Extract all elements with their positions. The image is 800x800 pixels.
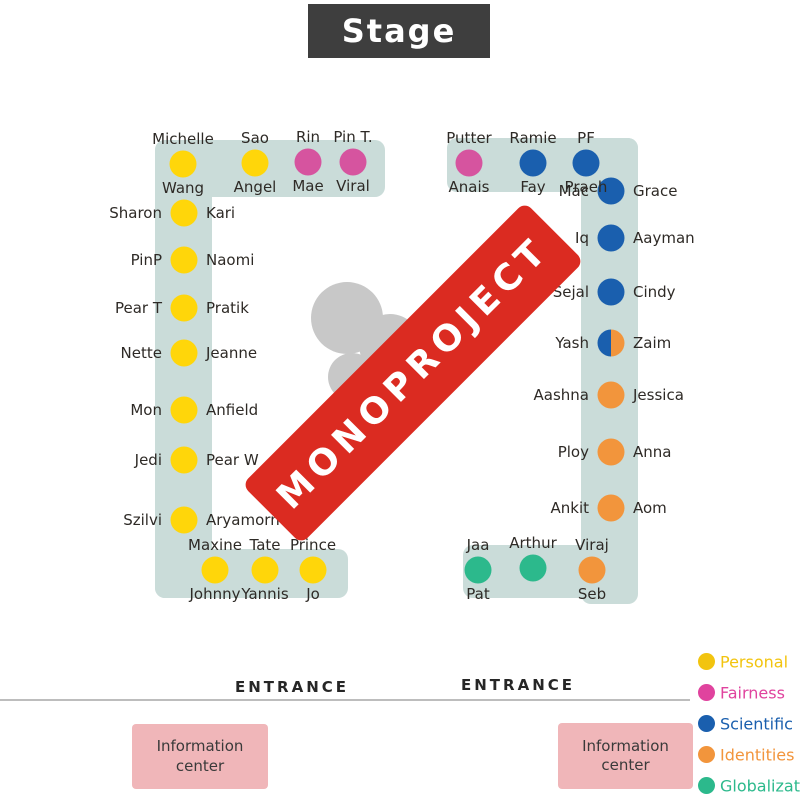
seat-name-label: Viral bbox=[336, 177, 370, 195]
legend-dot bbox=[698, 777, 715, 794]
seat-dot bbox=[242, 150, 269, 177]
seat-name-label: Cindy bbox=[633, 283, 676, 301]
seat-dot bbox=[598, 495, 625, 522]
seat-name-label: Fay bbox=[520, 178, 545, 196]
seat-name-label: Seb bbox=[578, 585, 606, 603]
seat-dot bbox=[171, 447, 198, 474]
seat-name-label: Rin bbox=[296, 128, 320, 146]
seat-name-label: Michelle bbox=[152, 130, 214, 148]
seat-name-label: Grace bbox=[633, 182, 677, 200]
legend-dot bbox=[698, 653, 715, 670]
seat-dot bbox=[579, 557, 606, 584]
seat-dot bbox=[171, 340, 198, 367]
seat-dot bbox=[598, 225, 625, 252]
seat-name-label: Jo bbox=[306, 585, 320, 603]
seat-name-label: Wang bbox=[162, 179, 204, 197]
entrance-left-label: ENTRANCE bbox=[235, 678, 349, 696]
seat-name-label: Putter bbox=[446, 129, 491, 147]
seat-name-label: Anna bbox=[633, 443, 671, 461]
seat-name-label: Arthur bbox=[509, 534, 557, 552]
seat-name-label: Aashna bbox=[534, 386, 589, 404]
seat-dot bbox=[598, 330, 625, 357]
legend-label: Globalization bbox=[720, 777, 800, 796]
seat-dot bbox=[340, 149, 367, 176]
seat-name-label: Naomi bbox=[206, 251, 254, 269]
seat-dot bbox=[202, 557, 229, 584]
seat-name-label: Aryamorn bbox=[206, 511, 280, 529]
info-center-label: Information bbox=[582, 737, 669, 757]
seat-name-label: Pear T bbox=[115, 299, 162, 317]
seat-dot bbox=[171, 200, 198, 227]
seat-name-label: Iq bbox=[575, 229, 589, 247]
divider-line bbox=[0, 699, 690, 701]
stamp-text: MONOPROJECT bbox=[269, 229, 557, 517]
seat-name-label: Viraj bbox=[575, 536, 609, 554]
seat-name-label: Angel bbox=[234, 178, 277, 196]
seat-dot bbox=[598, 279, 625, 306]
seat-name-label: Sharon bbox=[109, 204, 162, 222]
monoproject-stamp: MONOPROJECT bbox=[242, 202, 584, 544]
seat-name-label: Zaim bbox=[633, 334, 671, 352]
seat-dot bbox=[598, 382, 625, 409]
right-table-side-band bbox=[581, 138, 638, 604]
legend-label: Identities bbox=[720, 746, 794, 765]
information-center-left: Information center bbox=[132, 724, 268, 789]
seat-name-label: Aayman bbox=[633, 229, 695, 247]
seat-name-label: Kari bbox=[206, 204, 235, 222]
seat-name-label: Pat bbox=[466, 585, 489, 603]
seat-name-label: Jessica bbox=[633, 386, 684, 404]
legend-label: Fairness bbox=[720, 684, 785, 703]
seat-dot bbox=[520, 555, 547, 582]
seat-name-label: PF bbox=[577, 129, 595, 147]
seat-name-label: Yannis bbox=[241, 585, 288, 603]
seat-name-label: PinP bbox=[131, 251, 162, 269]
seat-name-label: Yash bbox=[555, 334, 589, 352]
seat-dot bbox=[598, 439, 625, 466]
seat-name-label: Pratik bbox=[206, 299, 249, 317]
seat-name-label: Anais bbox=[449, 178, 490, 196]
info-center-label: center bbox=[601, 756, 649, 776]
seat-name-label: Jedi bbox=[135, 451, 162, 469]
seat-name-label: Ploy bbox=[558, 443, 589, 461]
seat-dot bbox=[456, 150, 483, 177]
entrance-right-label: ENTRANCE bbox=[461, 676, 575, 694]
seat-dot bbox=[252, 557, 279, 584]
seat-name-label: Pin T. bbox=[333, 128, 372, 146]
seat-name-label: Tate bbox=[250, 536, 281, 554]
information-center-right: Information center bbox=[558, 723, 693, 789]
legend-label: Personal bbox=[720, 653, 788, 672]
seat-name-label: Mac bbox=[559, 182, 589, 200]
seat-name-label: Mae bbox=[292, 177, 323, 195]
seating-chart: Stage MONOPROJECT MichelleWangSaoAngelRi… bbox=[0, 0, 800, 800]
seat-name-label: Pear W bbox=[206, 451, 259, 469]
seat-name-label: Mon bbox=[130, 401, 162, 419]
seat-name-label: Sao bbox=[241, 129, 269, 147]
seat-dot bbox=[300, 557, 327, 584]
seat-name-label: Jaa bbox=[467, 536, 490, 554]
info-center-label: center bbox=[176, 757, 224, 777]
seat-name-label: Anfield bbox=[206, 401, 258, 419]
seat-dot bbox=[465, 557, 492, 584]
legend-dot bbox=[698, 715, 715, 732]
seat-dot bbox=[171, 397, 198, 424]
seat-name-label: Ramie bbox=[509, 129, 556, 147]
seat-dot bbox=[170, 151, 197, 178]
seat-name-label: Maxine bbox=[188, 536, 242, 554]
seat-dot bbox=[573, 150, 600, 177]
seat-name-label: Ankit bbox=[550, 499, 589, 517]
seat-name-label: Aom bbox=[633, 499, 667, 517]
legend-label: Scientific bbox=[720, 715, 793, 734]
stage-header: Stage bbox=[308, 4, 490, 58]
seat-dot bbox=[171, 247, 198, 274]
seat-name-label: Johnny bbox=[190, 585, 241, 603]
seat-dot bbox=[171, 507, 198, 534]
stage-title: Stage bbox=[342, 12, 457, 50]
seat-dot bbox=[171, 295, 198, 322]
seat-dot bbox=[295, 149, 322, 176]
legend-dot bbox=[698, 684, 715, 701]
legend-dot bbox=[698, 746, 715, 763]
seat-name-label: Jeanne bbox=[206, 344, 257, 362]
seat-name-label: Szilvi bbox=[123, 511, 162, 529]
seat-dot bbox=[520, 150, 547, 177]
seat-name-label: Nette bbox=[121, 344, 162, 362]
info-center-label: Information bbox=[157, 737, 244, 757]
